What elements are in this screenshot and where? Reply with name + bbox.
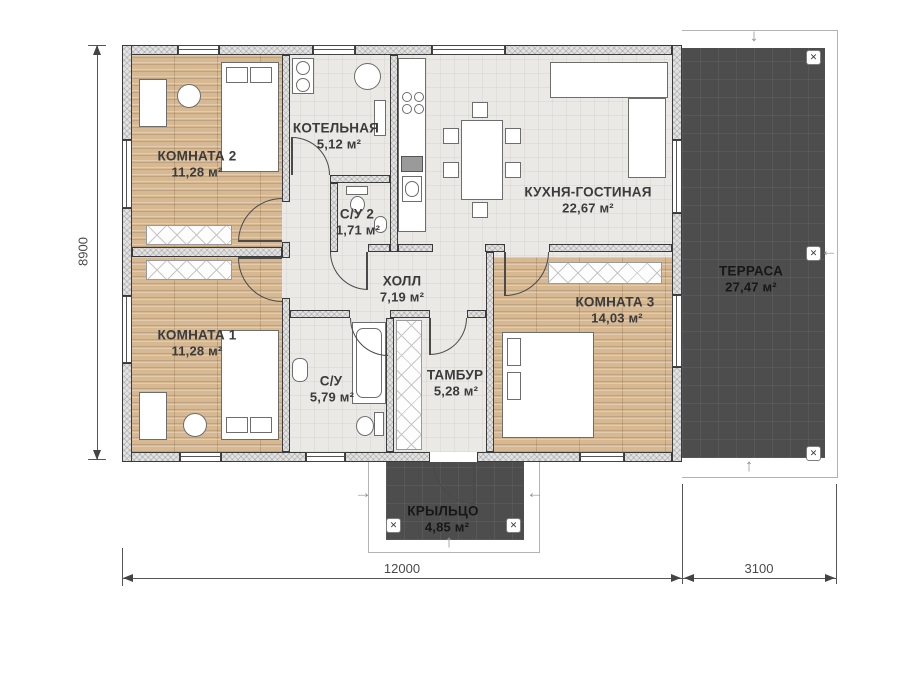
porch-label: КРЫЛЬЦО bbox=[407, 504, 478, 519]
wall bbox=[282, 298, 290, 452]
column-marker-icon: ✕ bbox=[386, 518, 401, 533]
wardrobe bbox=[548, 262, 662, 284]
column-marker-icon: ✕ bbox=[806, 50, 821, 65]
wall bbox=[122, 363, 132, 462]
wall bbox=[221, 452, 306, 462]
wall bbox=[672, 213, 682, 295]
sink-basin bbox=[405, 181, 419, 197]
pillow bbox=[226, 67, 248, 83]
door-leaf bbox=[504, 252, 506, 296]
wall bbox=[330, 183, 338, 252]
wall bbox=[549, 244, 672, 252]
door-leaf bbox=[238, 257, 282, 259]
room3-label: КОМНАТА 3 bbox=[575, 295, 654, 310]
toilet-bowl bbox=[356, 416, 374, 436]
wall bbox=[219, 45, 313, 55]
boiler-area: 5,12 м² bbox=[317, 137, 361, 152]
boiler-label: КОТЕЛЬНАЯ bbox=[293, 121, 379, 136]
wall bbox=[398, 244, 433, 252]
dining-table bbox=[461, 120, 503, 200]
column-marker-icon: ✕ bbox=[806, 446, 821, 461]
dimension-width-terrace: 3100 bbox=[734, 561, 784, 576]
door-leaf bbox=[238, 240, 282, 242]
window bbox=[122, 296, 132, 363]
dimension-arrow bbox=[93, 45, 101, 55]
water-heater bbox=[354, 63, 381, 90]
dimension-line bbox=[122, 578, 682, 579]
oven bbox=[401, 156, 423, 172]
wall bbox=[368, 244, 390, 252]
door-leaf bbox=[291, 137, 293, 175]
column-marker-icon: ✕ bbox=[806, 246, 821, 261]
floor-plan: ✕✕✕✕✕↓←↑→←↑ КОМНАТА 2 11,28 м² КОТЕЛЬНАЯ… bbox=[0, 0, 911, 683]
arrow-left-icon: ← bbox=[820, 242, 838, 258]
washbasin bbox=[292, 358, 308, 382]
wardrobe bbox=[146, 225, 232, 245]
dimension-width-main: 12000 bbox=[372, 561, 432, 576]
toilet-tank bbox=[346, 186, 368, 195]
dimension-arrow bbox=[684, 574, 694, 582]
chair bbox=[177, 84, 201, 108]
chair bbox=[183, 413, 207, 437]
kitchen-counter bbox=[398, 58, 426, 232]
window bbox=[313, 45, 355, 55]
sofa bbox=[550, 62, 668, 98]
window bbox=[672, 295, 682, 367]
pillow bbox=[226, 417, 248, 433]
wall bbox=[485, 244, 505, 252]
window bbox=[180, 452, 221, 462]
extension-line bbox=[682, 484, 683, 584]
bath2-label: С/У 2 bbox=[340, 207, 374, 222]
dimension-arrow bbox=[123, 574, 133, 582]
chair bbox=[443, 162, 459, 178]
wall bbox=[486, 252, 494, 452]
door-leaf bbox=[366, 252, 368, 290]
door-leaf bbox=[473, 462, 475, 506]
wall bbox=[672, 45, 682, 140]
pillow bbox=[507, 372, 521, 400]
column-marker-icon: ✕ bbox=[506, 518, 521, 533]
pillow bbox=[507, 338, 521, 366]
boiler-drum bbox=[296, 78, 310, 92]
chair bbox=[505, 162, 521, 178]
room2-area: 11,28 м² bbox=[172, 165, 223, 180]
wall bbox=[282, 55, 290, 202]
hall-area: 7,19 м² bbox=[380, 290, 424, 305]
desk bbox=[139, 79, 167, 127]
room3-area: 14,03 м² bbox=[591, 311, 643, 326]
pillow bbox=[250, 417, 272, 433]
kitchen-label: КУХНЯ-ГОСТИНАЯ bbox=[524, 185, 651, 200]
wall bbox=[624, 452, 672, 462]
porch-area: 4,85 м² bbox=[425, 520, 469, 535]
window bbox=[432, 45, 505, 55]
bath1-label: С/У bbox=[320, 374, 343, 389]
wall bbox=[505, 45, 672, 55]
toilet-tank bbox=[374, 412, 384, 436]
arrow-down-icon: ↓ bbox=[745, 27, 763, 45]
wall bbox=[282, 242, 290, 258]
dimension-arrow bbox=[93, 450, 101, 460]
terrace-area: 27,47 м² bbox=[725, 280, 777, 295]
chair bbox=[472, 102, 488, 118]
bath1-area: 5,79 м² bbox=[310, 390, 354, 405]
window bbox=[580, 452, 624, 462]
wall bbox=[467, 310, 486, 318]
tambour-area: 5,28 м² bbox=[434, 384, 478, 399]
chair bbox=[472, 202, 488, 218]
wall bbox=[122, 45, 132, 140]
pillow bbox=[250, 67, 272, 83]
room1-label: КОМНАТА 1 bbox=[157, 328, 236, 343]
wall bbox=[672, 367, 682, 462]
terrace-door bbox=[672, 140, 682, 213]
window bbox=[178, 45, 219, 55]
wall bbox=[390, 55, 398, 252]
desk bbox=[139, 392, 167, 440]
wardrobe bbox=[146, 260, 232, 280]
terrace-label: ТЕРРАСА bbox=[719, 264, 783, 279]
arrow-left-icon: ← bbox=[526, 484, 544, 500]
dimension-height: 8900 bbox=[76, 231, 91, 273]
stove-burner bbox=[402, 92, 412, 102]
wall bbox=[477, 452, 580, 462]
dimension-line bbox=[682, 578, 836, 579]
stove-burner bbox=[414, 92, 424, 102]
stove-burner bbox=[414, 104, 424, 114]
arrow-up-icon: ↑ bbox=[440, 533, 458, 551]
terrace-deck bbox=[682, 48, 825, 458]
kitchen-area: 22,67 м² bbox=[562, 201, 614, 216]
wall bbox=[390, 310, 430, 318]
sofa bbox=[628, 98, 666, 178]
bath2-area: 1,71 м² bbox=[336, 223, 380, 238]
wall bbox=[355, 45, 432, 55]
wall bbox=[330, 175, 390, 183]
room1-area: 11,28 м² bbox=[172, 344, 223, 359]
dimension-line bbox=[97, 45, 98, 460]
boiler-drum bbox=[296, 61, 310, 75]
window bbox=[306, 452, 345, 462]
window bbox=[122, 140, 132, 208]
chair bbox=[443, 128, 459, 144]
wall bbox=[122, 208, 132, 296]
wall bbox=[345, 452, 430, 462]
hall-label: ХОЛЛ bbox=[383, 274, 422, 289]
arrow-up-icon: ↑ bbox=[740, 457, 758, 475]
extension-line bbox=[836, 484, 837, 584]
dimension-arrow bbox=[825, 574, 835, 582]
wall bbox=[290, 310, 350, 318]
room2-label: КОМНАТА 2 bbox=[157, 149, 236, 164]
wall bbox=[132, 247, 282, 257]
tambour-label: ТАМБУР bbox=[427, 368, 483, 383]
dimension-arrow bbox=[671, 574, 681, 582]
chair bbox=[505, 128, 521, 144]
arrow-right-icon: → bbox=[354, 484, 372, 500]
stove-burner bbox=[402, 104, 412, 114]
door-leaf bbox=[429, 318, 431, 355]
closet bbox=[396, 320, 422, 450]
